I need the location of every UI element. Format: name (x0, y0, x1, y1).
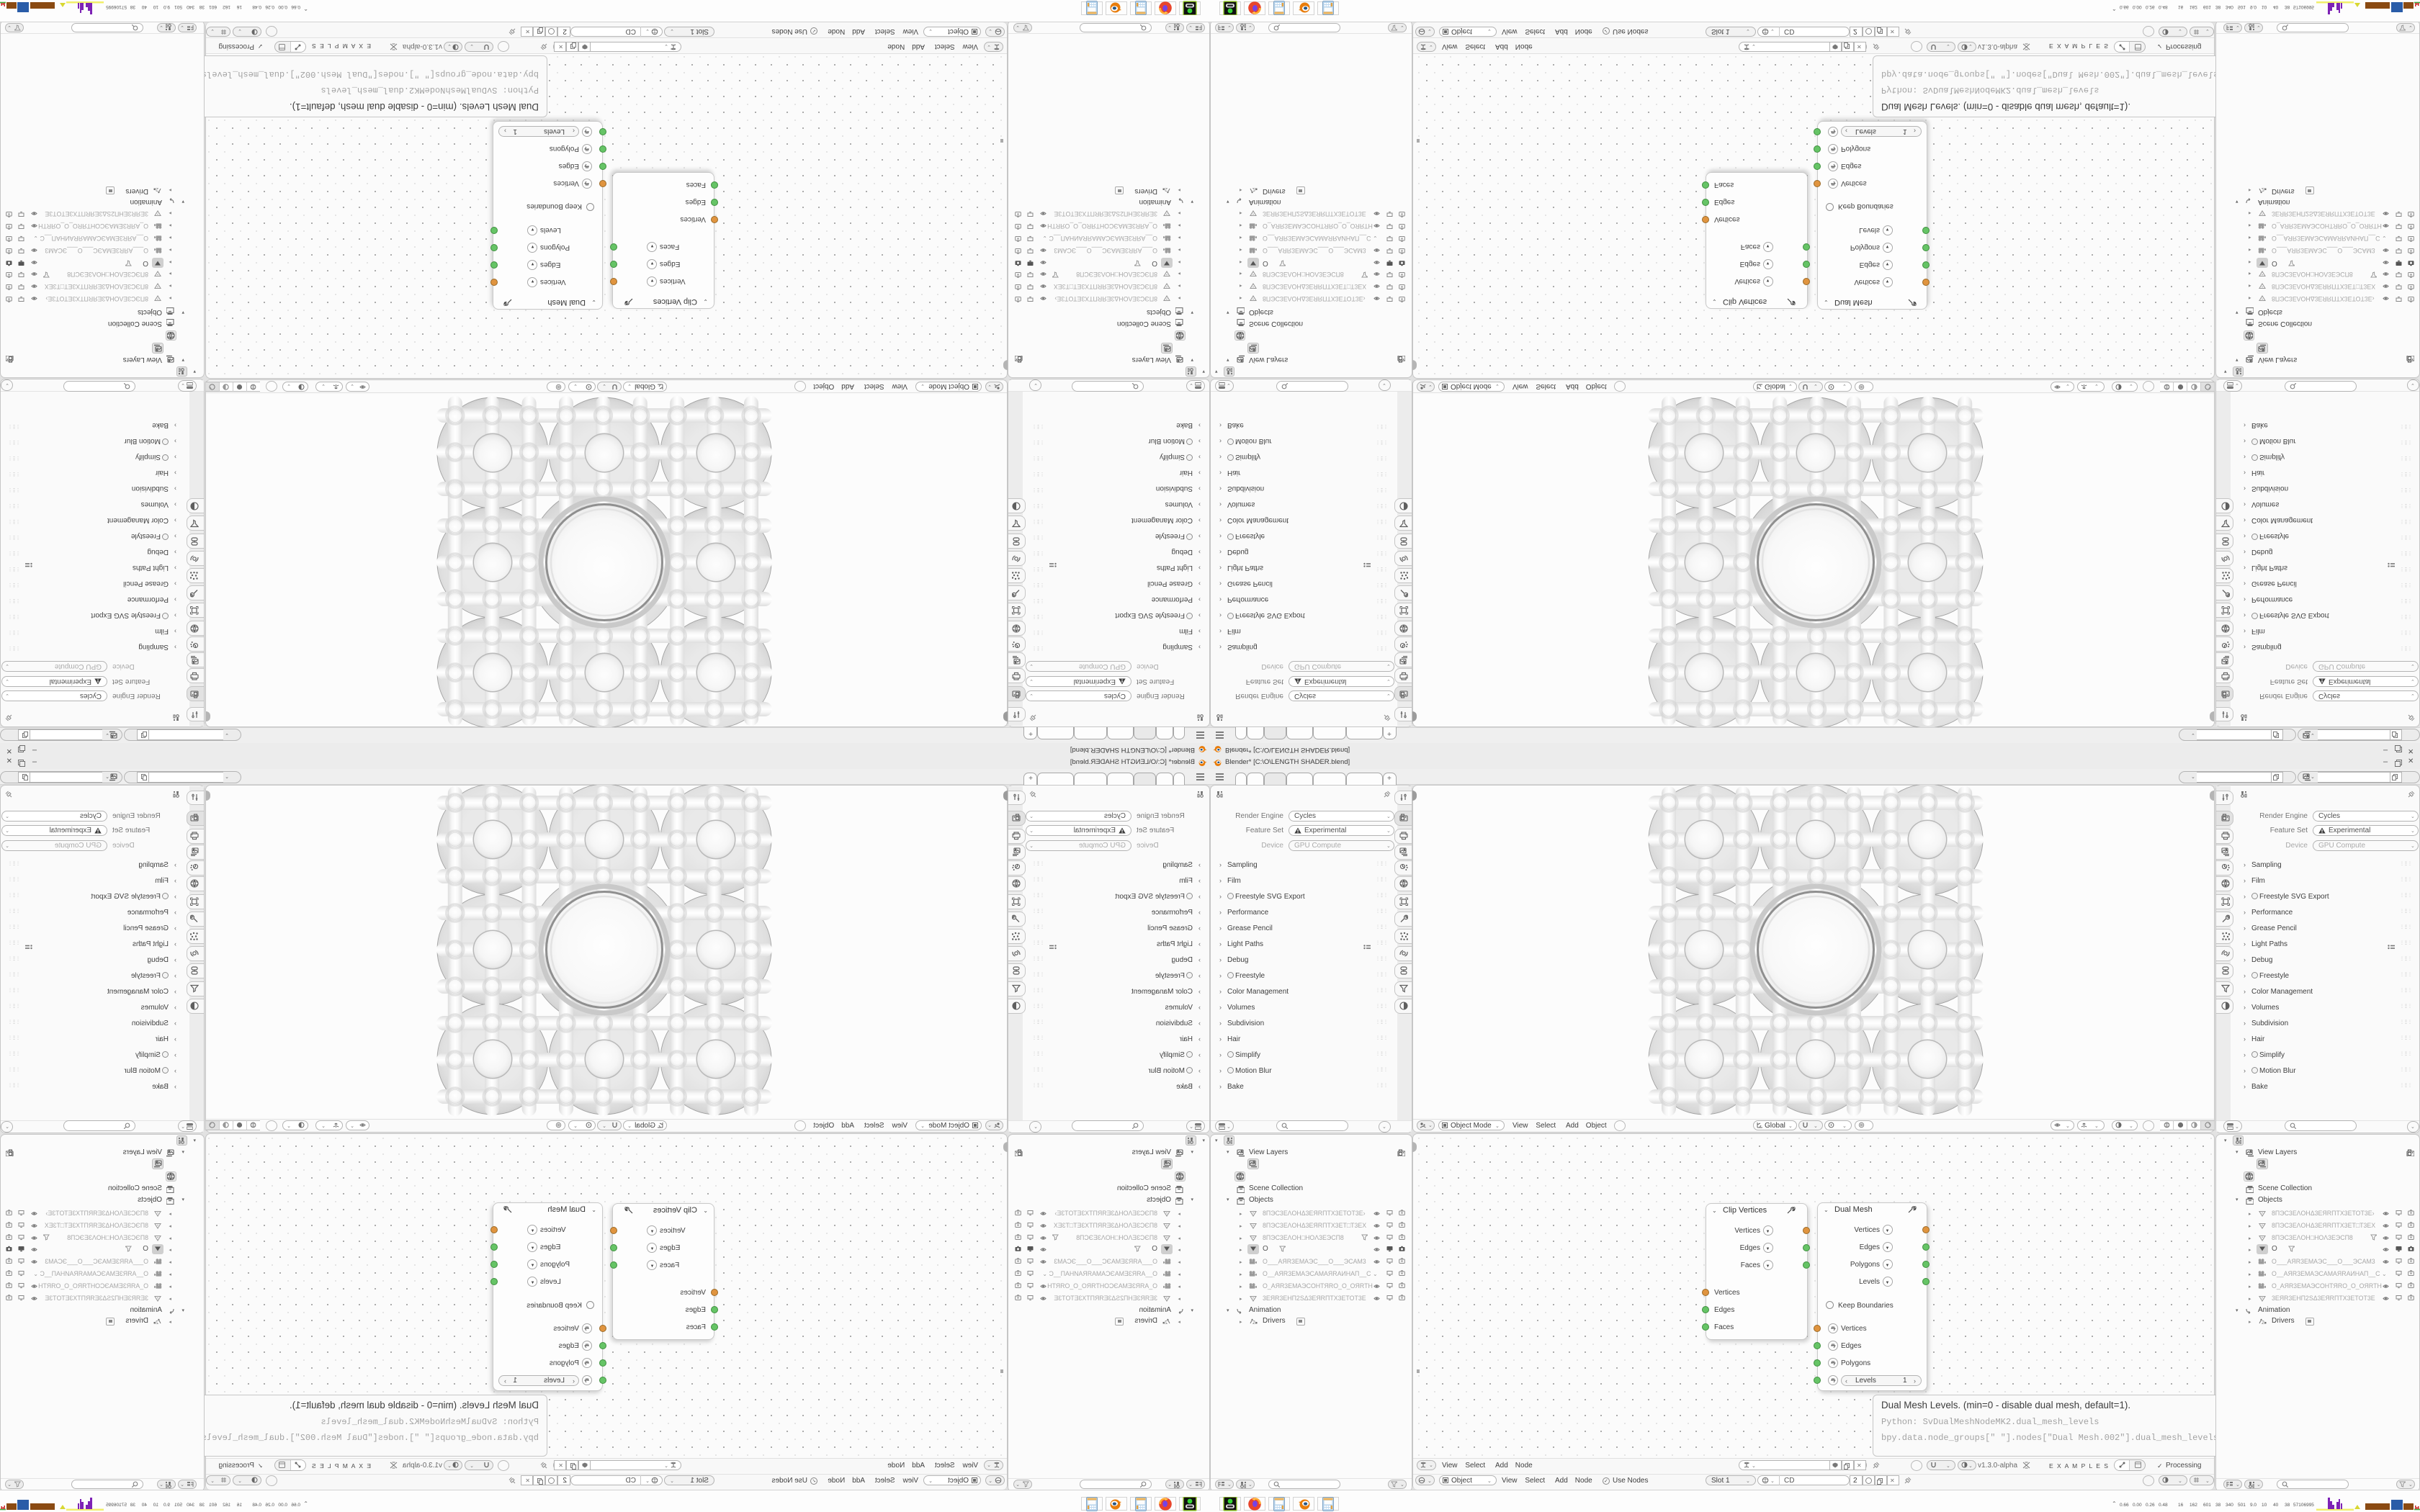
svg-text:2: 2 (2262, 1320, 2264, 1325)
svg-text:2: 2 (156, 1320, 158, 1325)
svg-text:2: 2 (156, 187, 158, 192)
svg-text:2: 2 (2262, 187, 2264, 192)
svg-text:2: 2 (1252, 187, 1255, 192)
svg-text:2: 2 (1165, 1320, 1168, 1325)
svg-text:2: 2 (1252, 1320, 1255, 1325)
svg-text:2: 2 (1165, 187, 1168, 192)
